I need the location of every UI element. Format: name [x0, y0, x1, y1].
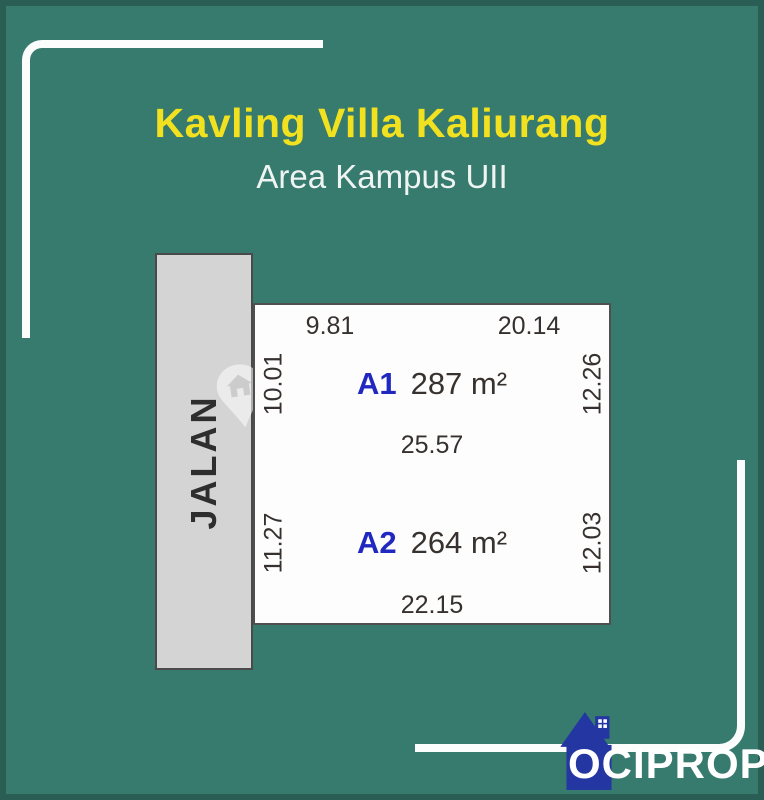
plot-a2-id: A2 — [357, 525, 397, 560]
page-subtitle: Area Kampus UII — [0, 158, 764, 196]
plot-a1-dim-left: 10.01 — [260, 353, 289, 416]
plot-a1-dim-right: 12.26 — [579, 353, 608, 416]
plot-a1-dim-top-left: 9.81 — [306, 312, 355, 341]
plot-a1-dim-top-right: 20.14 — [498, 312, 561, 341]
plot-a2-area: 264 m² — [411, 525, 507, 560]
brand-logo: OCIPROP — [556, 706, 762, 796]
poster: Kavling Villa Kaliurang Area Kampus UII … — [0, 0, 764, 800]
road-strip: JALAN — [155, 253, 253, 670]
plot-a2: 11.27 12.03 A2264 m² 22.15 — [253, 463, 611, 625]
page-title: Kavling Villa Kaliurang — [0, 100, 764, 147]
plot-a1-label: A1287 m² — [357, 366, 507, 402]
plot-a2-dim-left: 11.27 — [260, 513, 289, 574]
plot-a1-area: 287 m² — [411, 366, 507, 401]
plot-a2-dim-right: 12.03 — [579, 512, 608, 575]
brand-name: OCIPROP — [568, 740, 764, 788]
plot-a2-label: A2264 m² — [357, 525, 507, 561]
plot-a1: 9.81 20.14 10.01 12.26 A1287 m² 25.57 — [253, 303, 611, 465]
plot-a1-dim-bottom: 25.57 — [401, 431, 464, 460]
plot-a1-id: A1 — [357, 366, 397, 401]
plot-a2-dim-bottom: 22.15 — [401, 591, 464, 620]
